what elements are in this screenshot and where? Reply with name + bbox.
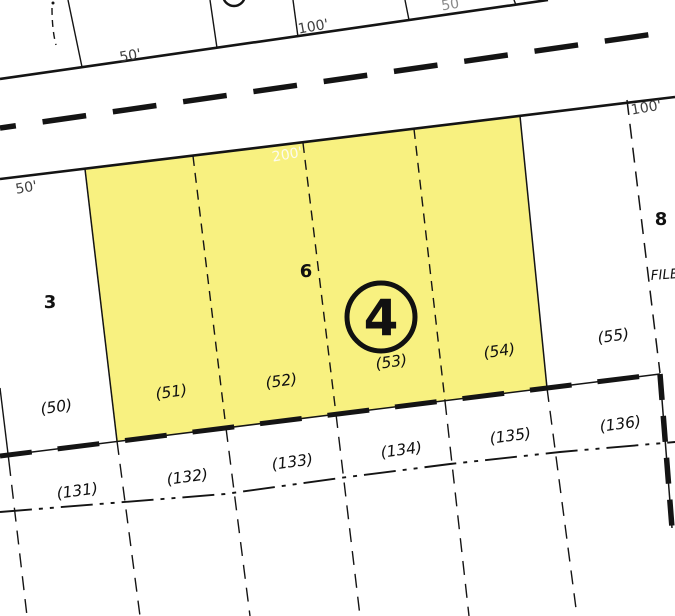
parcel-label-131: (131) [55, 479, 99, 503]
lot-split-134-135 [445, 401, 469, 616]
parcel-label-133: (133) [270, 450, 314, 474]
block-label-8: 8 [655, 209, 668, 230]
lower-centerline-dash-dot [0, 442, 675, 512]
upper-lot-line [405, 0, 409, 20]
upper-lot-line [68, 0, 82, 67]
lot-split-135-136 [547, 388, 577, 616]
lot-split-131-132 [117, 441, 140, 616]
lower-lot-line [9, 462, 27, 616]
dimension-label-50-left: 50' [14, 178, 38, 198]
file-annotation: FILE [650, 266, 675, 284]
plat-map-svg[interactable]: 4 50' 100' 50 100' 200' 50' 3 6 8 FILE (… [0, 0, 675, 616]
parcel-label-55: (55) [596, 325, 630, 347]
parcel-label-136: (136) [598, 412, 642, 436]
parcel-label-132: (132) [165, 465, 209, 489]
road-top-edge [0, 0, 548, 79]
road-centerline-dashed [0, 31, 675, 128]
parcel-label-135: (135) [488, 424, 532, 448]
lot-split-55-block8 [627, 100, 660, 373]
parcel-label-134: (134) [379, 438, 423, 462]
survey-tick-line [52, 8, 56, 45]
dimension-label-50-top-left: 50' [118, 46, 142, 66]
lower-lot-line-solid [0, 388, 9, 462]
survey-dot [52, 2, 55, 5]
map-canvas[interactable]: 4 50' 100' 50 100' 200' 50' 3 6 8 FILE (… [0, 0, 675, 616]
partial-lot-circle [223, 0, 245, 6]
upper-lot-line [210, 0, 217, 48]
upper-lot-line [293, 0, 298, 37]
parcel-label-50: (50) [39, 396, 73, 418]
lot-split-132-133 [226, 428, 250, 616]
block-label-6: 6 [300, 261, 313, 282]
lot-split-133-134 [336, 414, 360, 616]
block-label-3: 3 [44, 292, 57, 313]
lot-circle-number: 4 [364, 289, 399, 347]
dimension-label-100-top: 100' [297, 17, 330, 38]
